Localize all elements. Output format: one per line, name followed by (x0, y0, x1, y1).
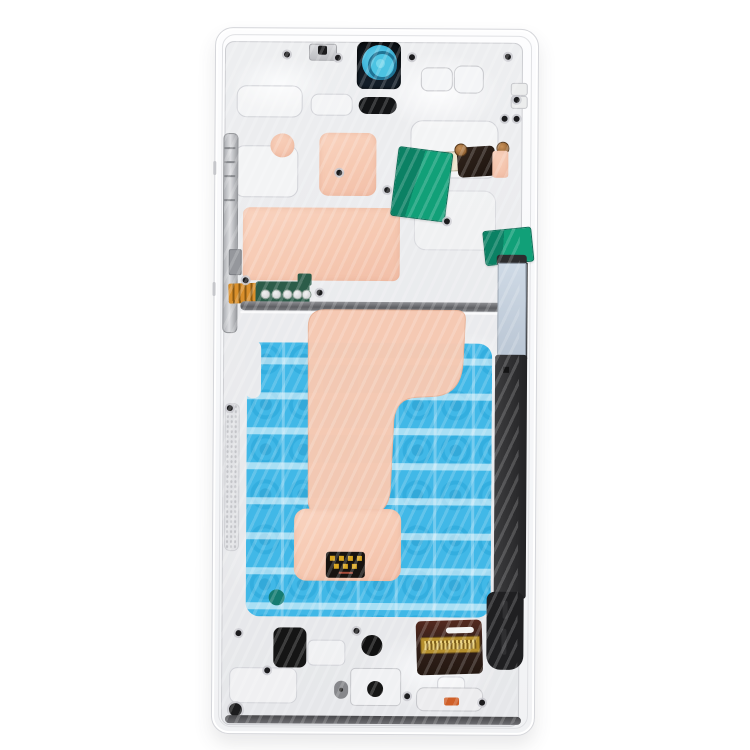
gold-pad (330, 556, 335, 561)
bottom-bracket-right (416, 687, 483, 711)
sticker-mark (339, 572, 353, 574)
screw (502, 116, 508, 122)
screw (404, 693, 410, 699)
board-flex-pad (416, 620, 484, 676)
grommet (334, 681, 348, 699)
midframe-part (211, 27, 539, 736)
pen-slot-cap (486, 592, 523, 670)
gold-pad (352, 564, 357, 569)
port-hole (361, 635, 382, 656)
embossed-mark (503, 601, 508, 619)
screw (264, 667, 270, 673)
screw (514, 97, 520, 103)
screw (384, 187, 390, 193)
teal-adhesive-dot (269, 589, 285, 605)
orange-chip (444, 697, 459, 705)
white-label (446, 627, 474, 634)
screw (335, 55, 341, 61)
screw (235, 630, 241, 636)
product-photo-stage (0, 0, 750, 750)
pen-slot-notch (503, 367, 509, 373)
btb-pins (424, 640, 476, 650)
screw (284, 51, 290, 57)
gold-pad (334, 564, 339, 569)
mic-hole (367, 681, 383, 697)
speaker-adhesive-pad (273, 627, 306, 667)
screw (317, 290, 323, 296)
contact-sticker (326, 552, 365, 578)
screw (227, 405, 233, 411)
screw (505, 54, 511, 60)
screw (479, 700, 485, 706)
screw (444, 218, 450, 224)
screw (353, 628, 359, 634)
grommet-hole (339, 688, 343, 692)
gold-pad (357, 556, 362, 561)
gold-pad (343, 564, 348, 569)
screw (514, 116, 520, 122)
screw (409, 54, 415, 60)
embossed-mark (501, 629, 506, 655)
screw (336, 170, 342, 176)
gold-pad (348, 556, 353, 561)
pen-slot-body (494, 355, 527, 599)
gold-pad (339, 556, 344, 561)
screw (243, 277, 249, 283)
pen-slot-window (497, 263, 527, 359)
btb-connector (420, 636, 480, 655)
antenna-strip (224, 403, 240, 551)
